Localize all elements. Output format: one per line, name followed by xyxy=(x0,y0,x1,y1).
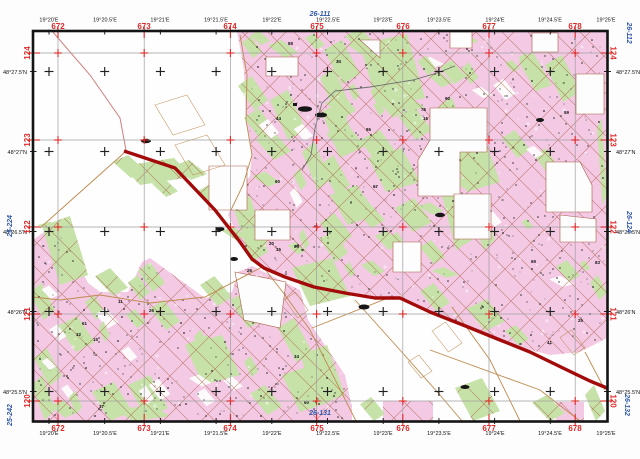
svg-text:25-242: 25-242 xyxy=(7,404,14,427)
svg-text:48°26'N: 48°26'N xyxy=(616,310,635,316)
svg-text:48°27'N: 48°27'N xyxy=(8,150,27,156)
svg-text:124: 124 xyxy=(23,46,32,60)
svg-text:86: 86 xyxy=(366,127,371,132)
svg-text:678: 678 xyxy=(568,22,582,31)
svg-text:19°25'E: 19°25'E xyxy=(596,18,615,24)
svg-text:25-224: 25-224 xyxy=(7,215,14,238)
svg-text:48°27.5'N: 48°27.5'N xyxy=(616,70,640,76)
svg-text:26-112: 26-112 xyxy=(625,21,632,43)
svg-text:48°27.5'N: 48°27.5'N xyxy=(3,70,27,76)
svg-text:673: 673 xyxy=(137,22,151,31)
svg-text:61: 61 xyxy=(82,321,87,326)
svg-text:26-131: 26-131 xyxy=(308,410,331,417)
svg-text:678: 678 xyxy=(568,424,582,433)
svg-text:19°20.5'E: 19°20.5'E xyxy=(93,431,117,437)
svg-text:121: 121 xyxy=(609,307,618,321)
svg-text:60: 60 xyxy=(275,179,280,184)
svg-text:88: 88 xyxy=(288,41,293,46)
svg-text:122: 122 xyxy=(609,220,618,234)
svg-text:676: 676 xyxy=(396,424,410,433)
svg-text:123: 123 xyxy=(609,133,618,147)
svg-text:124: 124 xyxy=(609,46,618,60)
svg-text:16: 16 xyxy=(423,116,428,121)
svg-text:120: 120 xyxy=(23,394,32,408)
svg-text:677: 677 xyxy=(482,424,496,433)
svg-text:122: 122 xyxy=(23,220,32,234)
svg-text:672: 672 xyxy=(51,22,65,31)
svg-text:19°22'E: 19°22'E xyxy=(262,431,281,437)
svg-text:19°23'E: 19°23'E xyxy=(373,18,392,24)
svg-text:19°23.5'E: 19°23.5'E xyxy=(427,18,451,24)
svg-text:34: 34 xyxy=(336,59,341,64)
svg-text:676: 676 xyxy=(396,22,410,31)
svg-text:19°21'E: 19°21'E xyxy=(150,431,169,437)
svg-text:41: 41 xyxy=(547,340,552,345)
svg-text:83: 83 xyxy=(595,260,600,265)
svg-text:69: 69 xyxy=(531,259,536,264)
svg-text:59: 59 xyxy=(564,110,569,115)
svg-text:672: 672 xyxy=(51,424,65,433)
svg-text:19°25'E: 19°25'E xyxy=(596,431,615,437)
svg-text:121: 121 xyxy=(23,307,32,321)
svg-text:69: 69 xyxy=(294,244,299,249)
svg-text:674: 674 xyxy=(223,424,237,433)
svg-text:19°23.5'E: 19°23.5'E xyxy=(427,431,451,437)
svg-text:32: 32 xyxy=(76,332,81,337)
svg-text:25: 25 xyxy=(578,318,583,323)
svg-text:20: 20 xyxy=(269,241,274,246)
svg-text:674: 674 xyxy=(223,22,237,31)
svg-text:48°27'N: 48°27'N xyxy=(616,150,635,156)
svg-text:26-111: 26-111 xyxy=(309,11,331,18)
svg-text:677: 677 xyxy=(482,22,496,31)
svg-text:37: 37 xyxy=(99,404,104,409)
svg-text:19°23'E: 19°23'E xyxy=(373,431,392,437)
svg-text:26-132: 26-132 xyxy=(623,393,630,416)
svg-text:19°24.5'E: 19°24.5'E xyxy=(538,431,562,437)
svg-text:44: 44 xyxy=(276,116,281,121)
svg-text:19°20.5'E: 19°20.5'E xyxy=(93,18,117,24)
svg-text:26: 26 xyxy=(149,308,154,313)
svg-text:75: 75 xyxy=(421,107,426,112)
svg-text:19°22'E: 19°22'E xyxy=(262,18,281,24)
svg-text:120: 120 xyxy=(609,394,618,408)
svg-text:19°24.5'E: 19°24.5'E xyxy=(538,18,562,24)
svg-text:67: 67 xyxy=(373,184,378,189)
svg-text:673: 673 xyxy=(137,424,151,433)
svg-text:675: 675 xyxy=(310,22,324,31)
svg-text:19°21'E: 19°21'E xyxy=(150,18,169,24)
svg-text:123: 123 xyxy=(23,133,32,147)
svg-text:90: 90 xyxy=(445,96,450,101)
svg-text:34: 34 xyxy=(294,354,299,359)
svg-text:675: 675 xyxy=(310,424,324,433)
svg-text:26-124: 26-124 xyxy=(625,210,632,233)
svg-text:35: 35 xyxy=(276,247,281,252)
svg-text:11: 11 xyxy=(118,299,123,304)
svg-text:15: 15 xyxy=(93,337,98,342)
